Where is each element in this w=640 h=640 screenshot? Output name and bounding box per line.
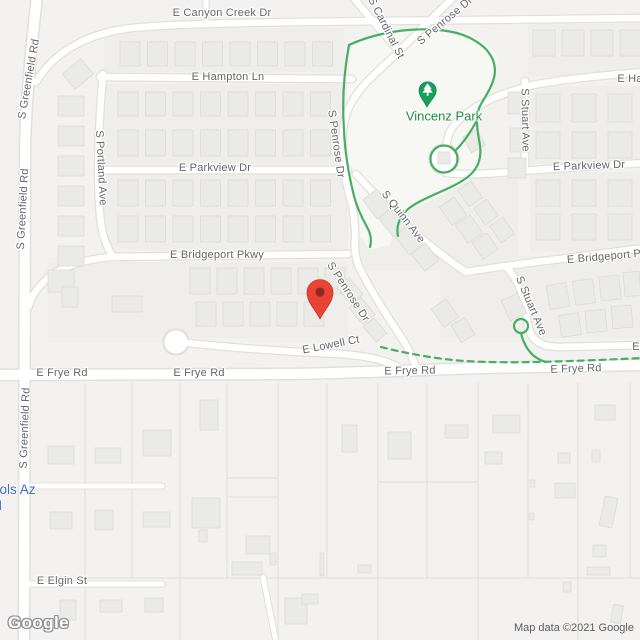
building-footprint (313, 42, 333, 66)
building-footprint (510, 128, 528, 152)
building-footprint (611, 305, 633, 329)
marker-inner-dot (315, 287, 324, 296)
building-footprint (585, 309, 607, 333)
building-footprint (572, 132, 596, 158)
building-footprint (48, 446, 74, 464)
building-footprint (228, 130, 248, 156)
building-footprint (599, 275, 621, 301)
building-footprint (173, 92, 193, 116)
building-footprint (217, 268, 237, 294)
building-footprint (256, 92, 276, 116)
building-footprint (270, 553, 276, 565)
building-footprint (555, 483, 575, 498)
park-label[interactable]: Vincenz Park (406, 109, 482, 124)
building-footprint (438, 152, 450, 164)
building-footprint (118, 180, 138, 206)
building-footprint (173, 216, 193, 242)
building-footprint (146, 130, 166, 156)
building-footprint (608, 94, 632, 122)
building-footprint (623, 271, 640, 296)
building-footprint (302, 594, 318, 604)
building-footprint (311, 92, 331, 116)
building-footprint (58, 126, 84, 146)
building-footprint (256, 180, 276, 206)
building-footprint (485, 452, 502, 464)
map-attribution: Map data ©2021 Google (514, 622, 634, 634)
building-footprint (192, 498, 220, 528)
building-footprint (201, 216, 221, 242)
building-footprint (608, 180, 632, 206)
building-footprint (558, 453, 570, 463)
building-footprint (118, 216, 138, 242)
building-footprint (201, 180, 221, 206)
building-footprint (620, 30, 640, 56)
building-footprint (591, 30, 613, 56)
building-footprint (572, 214, 596, 240)
building-footprint (529, 513, 534, 520)
building-footprint (146, 180, 166, 206)
building-footprint (203, 42, 223, 66)
building-footprint (572, 180, 596, 206)
building-footprint (201, 130, 221, 156)
building-footprint (546, 282, 570, 309)
building-footprint (190, 268, 210, 294)
building-footprint (230, 42, 250, 66)
building-footprint (50, 512, 72, 529)
building-footprint (58, 216, 84, 236)
building-footprint (228, 216, 248, 242)
building-footprint (508, 92, 526, 114)
building-footprint (143, 512, 170, 527)
building-footprint (283, 216, 303, 242)
building-footprint (536, 94, 560, 122)
building-footprint (232, 562, 262, 575)
building-footprint (493, 415, 520, 433)
building-footprint (283, 180, 303, 206)
school-poi-label-line2[interactable]: ol (0, 499, 2, 513)
building-footprint (536, 180, 560, 206)
building-footprint (201, 92, 221, 116)
building-footprint (173, 180, 193, 206)
building-footprint (277, 302, 297, 326)
building-footprint (244, 268, 264, 294)
building-footprint (593, 545, 606, 557)
building-footprint (592, 450, 600, 462)
building-footprint (572, 279, 595, 306)
building-footprint (145, 598, 163, 612)
building-footprint (118, 92, 138, 116)
building-footprint (95, 448, 121, 463)
building-footprint (199, 530, 207, 542)
building-footprint (175, 42, 195, 66)
building-footprint (611, 604, 624, 623)
map-graphics (0, 0, 640, 640)
building-footprint (256, 130, 276, 156)
building-footprint (311, 130, 331, 156)
building-footprint (595, 405, 615, 420)
building-footprint (148, 42, 168, 66)
building-footprint (58, 96, 84, 116)
lot-lines (85, 383, 640, 640)
building-footprint (118, 130, 138, 156)
building-footprint (388, 432, 411, 459)
building-footprint (173, 130, 193, 156)
building-footprint (228, 180, 248, 206)
building-footprint (100, 600, 122, 612)
building-footprint (112, 296, 142, 312)
building-footprint (608, 132, 632, 158)
building-footprint (562, 30, 584, 56)
building-footprint (342, 425, 357, 452)
building-footprint (563, 582, 571, 592)
building-footprint (58, 156, 84, 176)
building-footprint (146, 216, 166, 242)
building-footprint (62, 287, 78, 307)
building-footprint (62, 59, 93, 90)
building-footprint (508, 158, 526, 178)
building-footprint (587, 567, 610, 575)
building-footprint (228, 92, 248, 116)
building-footprint (536, 132, 560, 158)
building-footprint (223, 302, 243, 326)
building-footprint (200, 400, 218, 430)
building-footprint (533, 30, 555, 56)
building-footprint (320, 553, 324, 576)
building-footprint (445, 425, 468, 438)
building-footprint (271, 268, 291, 294)
building-footprint (599, 496, 618, 528)
building-footprint (246, 536, 270, 554)
building-footprint (559, 313, 582, 338)
building-footprint (58, 246, 84, 266)
building-footprint (250, 302, 270, 326)
building-footprint (258, 42, 278, 66)
building-footprint (58, 186, 84, 206)
building-footprint (283, 130, 303, 156)
google-logo[interactable]: Google (8, 613, 69, 633)
building-footprint (536, 214, 560, 240)
building-footprint (283, 92, 303, 116)
building-footprint (311, 180, 331, 206)
building-footprint (95, 510, 113, 530)
building-footprint (120, 42, 140, 66)
school-poi-label-line1[interactable]: ools Az (0, 482, 36, 497)
building-footprint (358, 565, 371, 573)
building-footprint (608, 214, 632, 240)
building-footprint (285, 42, 305, 66)
building-footprint (196, 302, 216, 326)
building-footprint (572, 94, 596, 122)
building-footprint (146, 92, 166, 116)
building-footprint (530, 480, 535, 487)
building-footprint (143, 430, 171, 456)
building-footprint (256, 216, 276, 242)
building-footprint (311, 216, 331, 242)
map-canvas[interactable]: E Canyon Creek DrS Greenfield RdS Greenf… (0, 0, 640, 640)
